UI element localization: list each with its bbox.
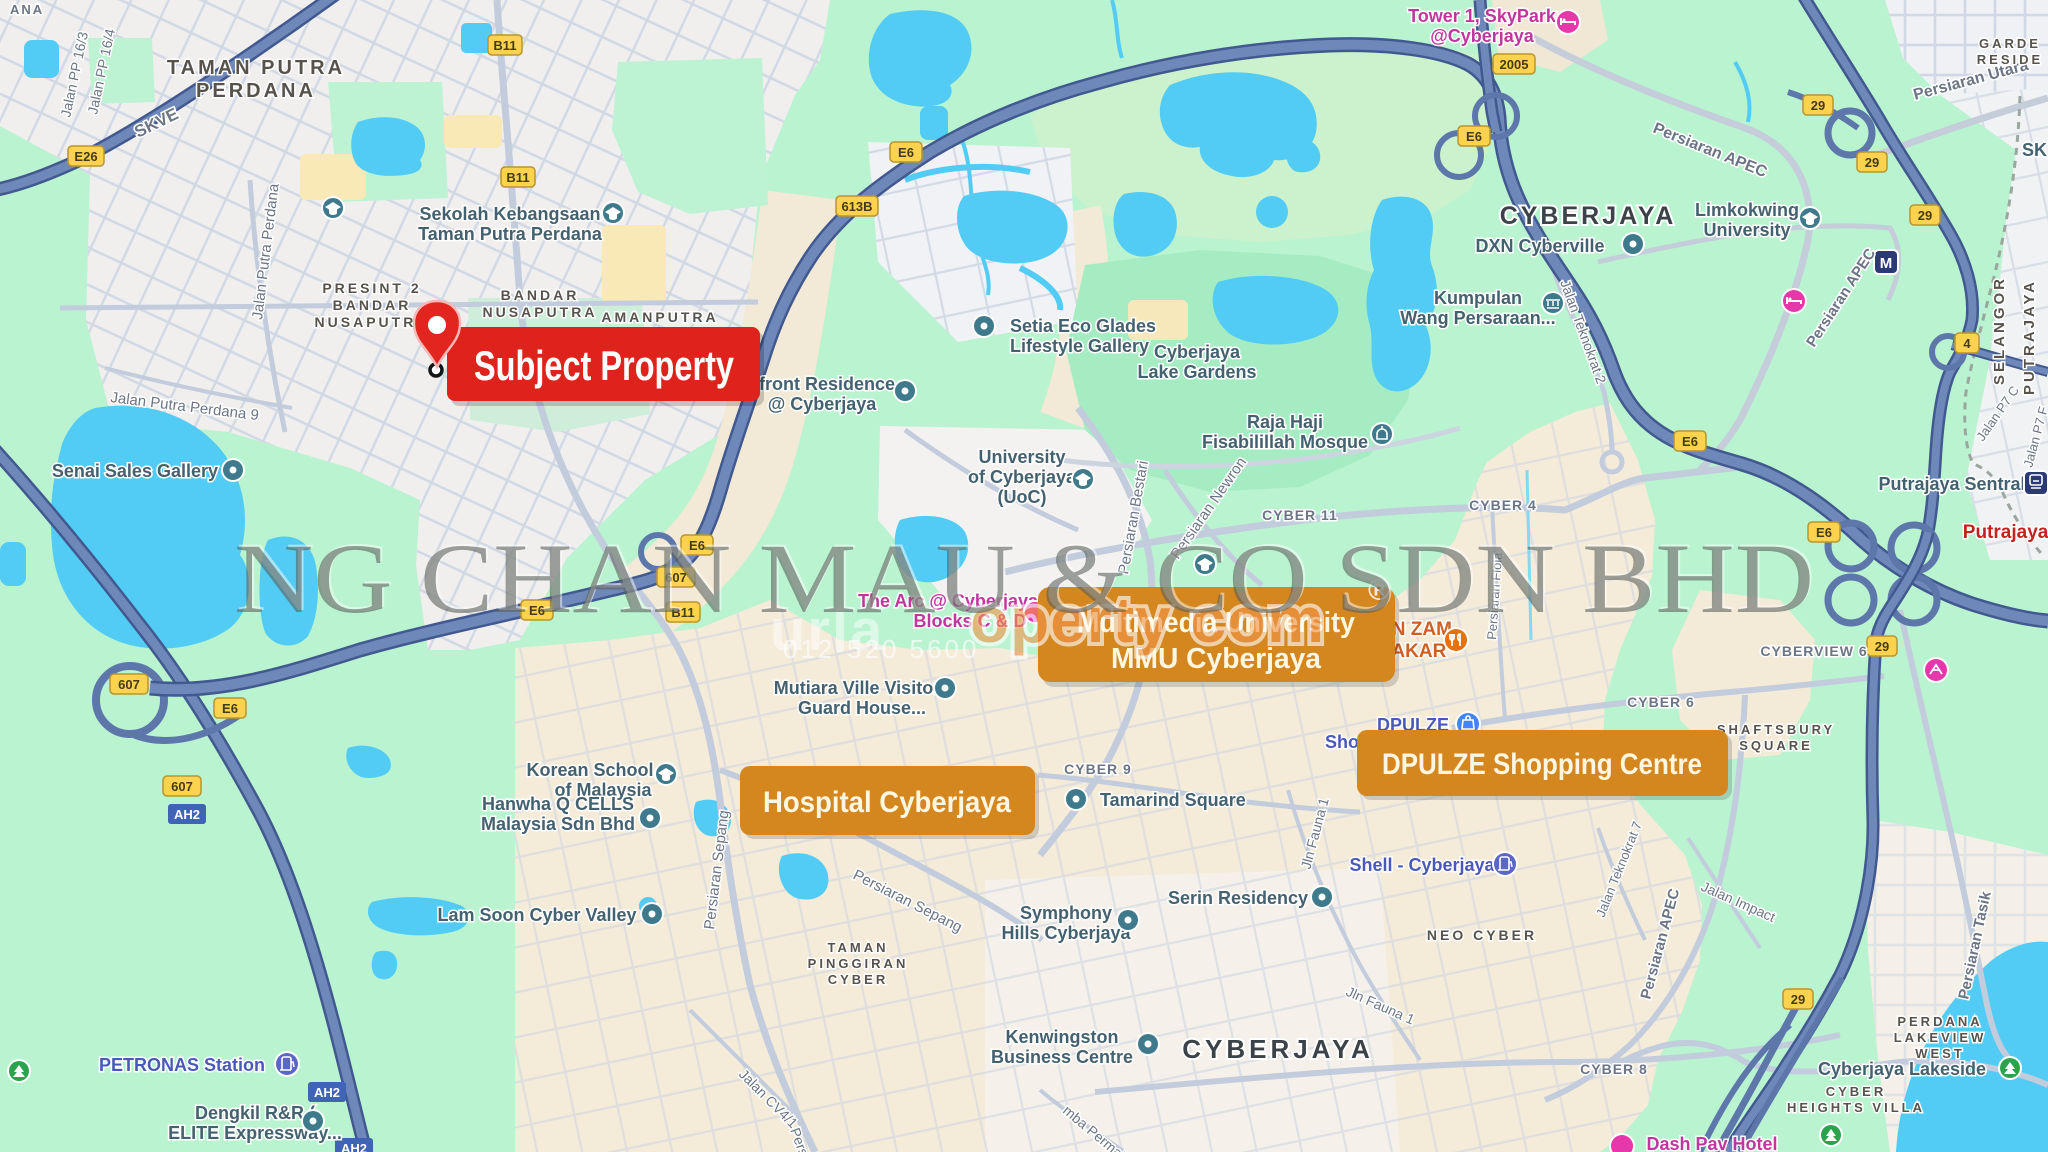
svg-text:Malaysia Sdn Bhd: Malaysia Sdn Bhd <box>481 814 635 834</box>
svg-text:E26: E26 <box>74 149 97 164</box>
svg-text:Lam Soon Cyber Valley: Lam Soon Cyber Valley <box>437 905 636 925</box>
svg-text:DXN Cyberville: DXN Cyberville <box>1475 236 1604 256</box>
svg-text:SHAFTSBURY: SHAFTSBURY <box>1717 722 1835 737</box>
svg-text:PERDANA: PERDANA <box>1897 1014 1982 1029</box>
svg-text:29: 29 <box>1791 992 1805 1007</box>
svg-text:Symphony: Symphony <box>1020 903 1112 923</box>
svg-text:Fisabilillah Mosque: Fisabilillah Mosque <box>1202 432 1368 452</box>
svg-text:CYBER: CYBER <box>1826 1084 1887 1099</box>
svg-text:Senai Sales Gallery: Senai Sales Gallery <box>52 461 218 481</box>
svg-text:E6: E6 <box>898 145 914 160</box>
svg-text:Tamarind Square: Tamarind Square <box>1100 790 1246 810</box>
svg-text:4: 4 <box>1963 336 1971 351</box>
svg-text:CYBER 6: CYBER 6 <box>1627 694 1695 710</box>
svg-text:Korean School: Korean School <box>526 760 653 780</box>
svg-text:NUSAPUTRA: NUSAPUTRA <box>483 304 598 320</box>
svg-text:Taman Putra Perdana: Taman Putra Perdana <box>418 224 603 244</box>
svg-text:TAMAN PUTRA: TAMAN PUTRA <box>167 57 345 79</box>
svg-text:M: M <box>1880 255 1893 272</box>
svg-text:AH2: AH2 <box>341 1141 367 1152</box>
svg-text:LAKEVIEW: LAKEVIEW <box>1894 1030 1987 1045</box>
svg-text:012-520 5600: 012-520 5600 <box>783 634 979 664</box>
svg-text:Kumpulan: Kumpulan <box>1434 288 1522 308</box>
svg-text:PERDANA: PERDANA <box>196 80 316 102</box>
svg-text:E6: E6 <box>1682 434 1698 449</box>
svg-text:RESIDE: RESIDE <box>1977 52 2043 67</box>
svg-text:PRESINT 2: PRESINT 2 <box>322 280 421 296</box>
svg-text:29: 29 <box>1875 639 1889 654</box>
svg-text:PINGGIRAN: PINGGIRAN <box>808 956 909 971</box>
svg-text:SK Pu: SK Pu <box>2022 140 2048 160</box>
svg-text:CYBER 8: CYBER 8 <box>1580 1061 1648 1077</box>
svg-text:University: University <box>1703 220 1790 240</box>
svg-text:PETRONAS Station: PETRONAS Station <box>99 1055 265 1075</box>
svg-text:CYBERJAYA: CYBERJAYA <box>1500 202 1677 230</box>
svg-text:TAMAN: TAMAN <box>828 940 889 955</box>
svg-text:Hanwha Q CELLS: Hanwha Q CELLS <box>482 794 634 814</box>
svg-text:Kenwingston: Kenwingston <box>1006 1027 1119 1047</box>
svg-text:Setia Eco Glades: Setia Eco Glades <box>1010 316 1156 336</box>
svg-text:Lifestyle Gallery: Lifestyle Gallery <box>1010 336 1149 356</box>
svg-text:efront Residence: efront Residence <box>749 374 895 394</box>
svg-text:University: University <box>978 447 1065 467</box>
svg-text:Lake Gardens: Lake Gardens <box>1137 362 1256 382</box>
svg-text:Hills Cyberjaya: Hills Cyberjaya <box>1001 923 1131 943</box>
svg-text:Cyberjaya: Cyberjaya <box>1154 342 1241 362</box>
svg-text:Putrajaya Sentral: Putrajaya Sentral <box>1878 474 2025 494</box>
svg-text:SELANGOR: SELANGOR <box>1991 276 2008 385</box>
svg-text:GARDE: GARDE <box>1979 36 2041 51</box>
svg-text:CYBERJAYA: CYBERJAYA <box>1182 1034 1374 1064</box>
svg-text:B11: B11 <box>493 38 516 53</box>
svg-text:Shell - Cyberjaya: Shell - Cyberjaya <box>1349 855 1495 875</box>
svg-text:PUTRAJAYA: PUTRAJAYA <box>2021 279 2038 395</box>
svg-text:Dengkil R&R (: Dengkil R&R ( <box>195 1103 315 1123</box>
svg-text:Hospital Cyberjaya: Hospital Cyberjaya <box>763 786 1011 819</box>
svg-text:ANA: ANA <box>10 2 44 17</box>
svg-text:DPULZE Shopping Centre: DPULZE Shopping Centre <box>1382 748 1702 781</box>
svg-text:607: 607 <box>118 677 140 692</box>
svg-text:Subject Property: Subject Property <box>474 342 734 389</box>
svg-text:BANDAR: BANDAR <box>333 297 412 313</box>
svg-text:Limkokwing: Limkokwing <box>1695 200 1799 220</box>
svg-text:SQUARE: SQUARE <box>1739 738 1813 753</box>
svg-text:Cyberjaya Lakeside: Cyberjaya Lakeside <box>1818 1059 1986 1079</box>
svg-text:Sekolah Kebangsaan: Sekolah Kebangsaan <box>419 204 600 224</box>
svg-text:E6: E6 <box>1466 129 1482 144</box>
svg-text:(UoC): (UoC) <box>998 487 1047 507</box>
svg-text:NG CHAN MAU & CO SDN BHD: NG CHAN MAU & CO SDN BHD <box>234 523 1814 634</box>
svg-text:29: 29 <box>1918 208 1932 223</box>
svg-text:Guard House...: Guard House... <box>798 698 926 718</box>
svg-text:AH2: AH2 <box>314 1085 340 1100</box>
svg-text:Serin Residency: Serin Residency <box>1168 888 1308 908</box>
svg-text:Wang Persaraan...: Wang Persaraan... <box>1400 308 1555 328</box>
svg-text:Business Centre: Business Centre <box>991 1047 1133 1067</box>
svg-text:@ Cyberjaya: @ Cyberjaya <box>768 394 878 414</box>
svg-text:CYBER 9: CYBER 9 <box>1064 761 1132 777</box>
svg-text:CYBER 4: CYBER 4 <box>1469 497 1537 513</box>
svg-text:2005: 2005 <box>1500 57 1529 72</box>
svg-text:NUSAPUTRA: NUSAPUTRA <box>315 314 430 330</box>
svg-text:HEIGHTS VILLA: HEIGHTS VILLA <box>1787 1100 1925 1115</box>
svg-text:NEO CYBER: NEO CYBER <box>1427 927 1537 943</box>
svg-text:Putrajaya L: Putrajaya L <box>1963 522 2048 543</box>
svg-text:@Cyberjaya: @Cyberjaya <box>1430 26 1535 46</box>
svg-text:29: 29 <box>1865 155 1879 170</box>
svg-text:of Cyberjaya: of Cyberjaya <box>968 467 1077 487</box>
svg-text:CYBERVIEW 6: CYBERVIEW 6 <box>1760 643 1867 659</box>
svg-text:613B: 613B <box>841 199 872 214</box>
svg-text:AMANPUTRA: AMANPUTRA <box>601 309 718 325</box>
svg-text:Mutiara Ville Visitors: Mutiara Ville Visitors <box>774 678 950 698</box>
svg-text:AH2: AH2 <box>174 807 200 822</box>
svg-text:BANDAR: BANDAR <box>501 287 580 303</box>
svg-text:B11: B11 <box>506 170 529 185</box>
svg-text:607: 607 <box>171 779 193 794</box>
svg-text:CYBER: CYBER <box>828 972 889 987</box>
svg-text:E6: E6 <box>222 701 238 716</box>
svg-text:Tower 1, SkyPark: Tower 1, SkyPark <box>1408 6 1557 26</box>
svg-text:29: 29 <box>1811 98 1825 113</box>
svg-text:Raja Haji: Raja Haji <box>1247 412 1323 432</box>
svg-text:E6: E6 <box>1816 525 1832 540</box>
svg-text:Dash Pav Hotel: Dash Pav Hotel <box>1646 1134 1777 1152</box>
